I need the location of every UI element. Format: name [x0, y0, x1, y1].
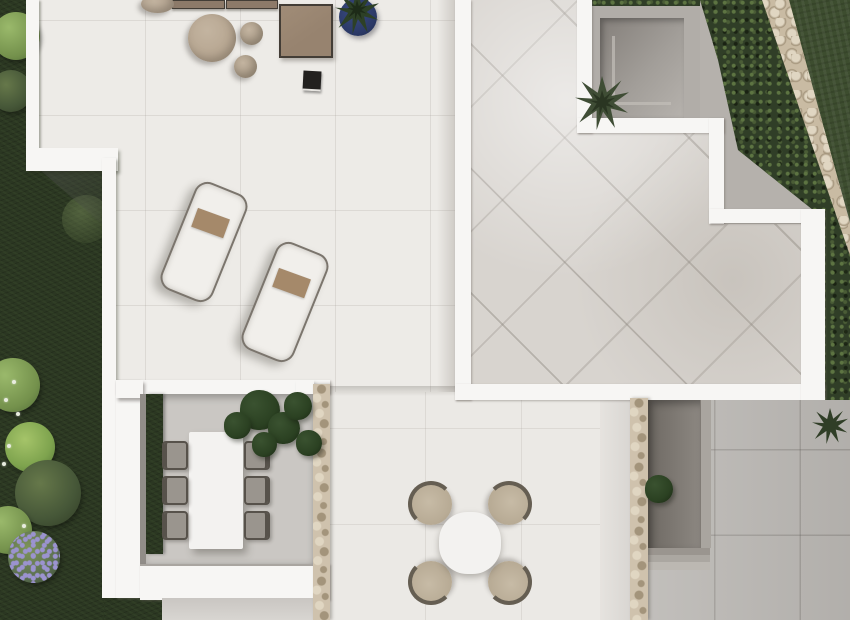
sun-lounger — [156, 178, 251, 307]
lounger-towel — [191, 208, 230, 238]
lounger-towel — [272, 268, 311, 298]
aerial-view-stage — [0, 0, 850, 620]
sun-lounger — [237, 238, 332, 367]
sun-loungers — [0, 0, 850, 620]
